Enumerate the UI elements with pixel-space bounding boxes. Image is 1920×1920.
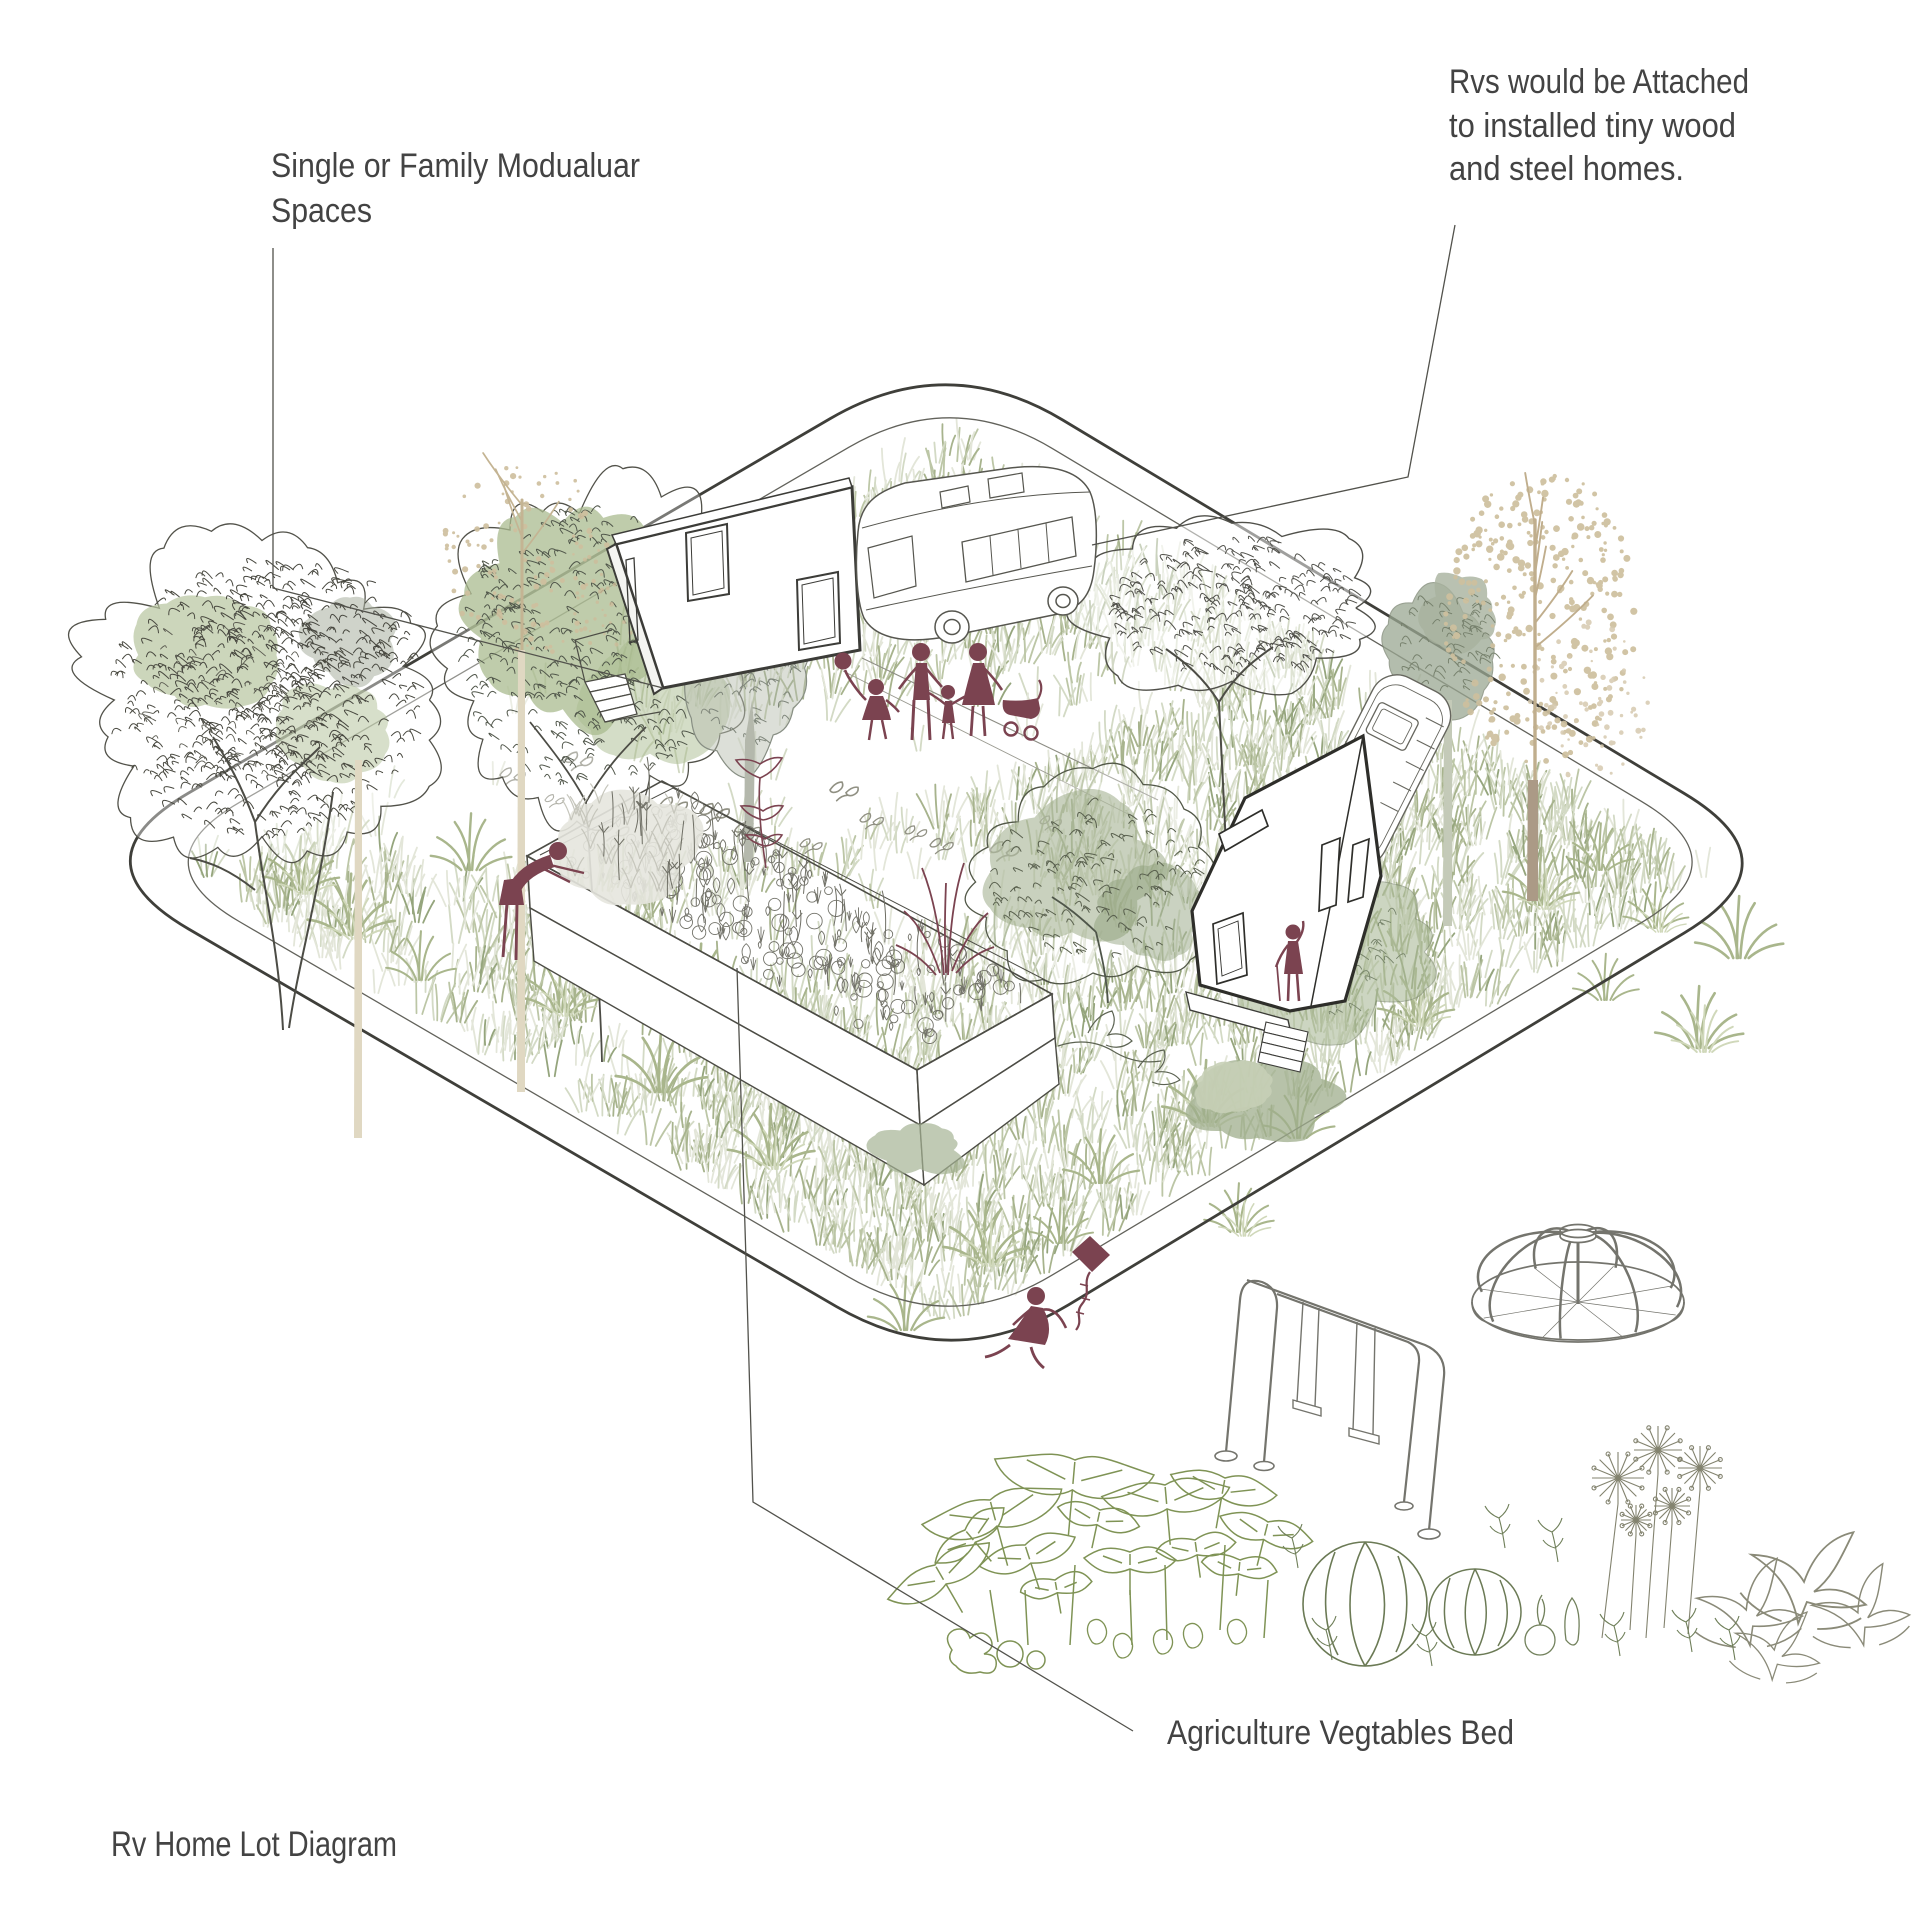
svg-text:Rv Home Lot Diagram: Rv Home Lot Diagram: [111, 1825, 397, 1864]
svg-text:to installed tiny wood: to installed tiny wood: [1449, 107, 1736, 145]
svg-text:Spaces: Spaces: [271, 192, 372, 230]
svg-text:Rvs would be Attached: Rvs would be Attached: [1449, 63, 1749, 101]
svg-text:Single or Family Modualuar: Single or Family Modualuar: [271, 147, 640, 185]
svg-text:and steel homes.: and steel homes.: [1449, 150, 1684, 188]
svg-text:Agriculture Vegtables Bed: Agriculture Vegtables Bed: [1167, 1714, 1514, 1752]
